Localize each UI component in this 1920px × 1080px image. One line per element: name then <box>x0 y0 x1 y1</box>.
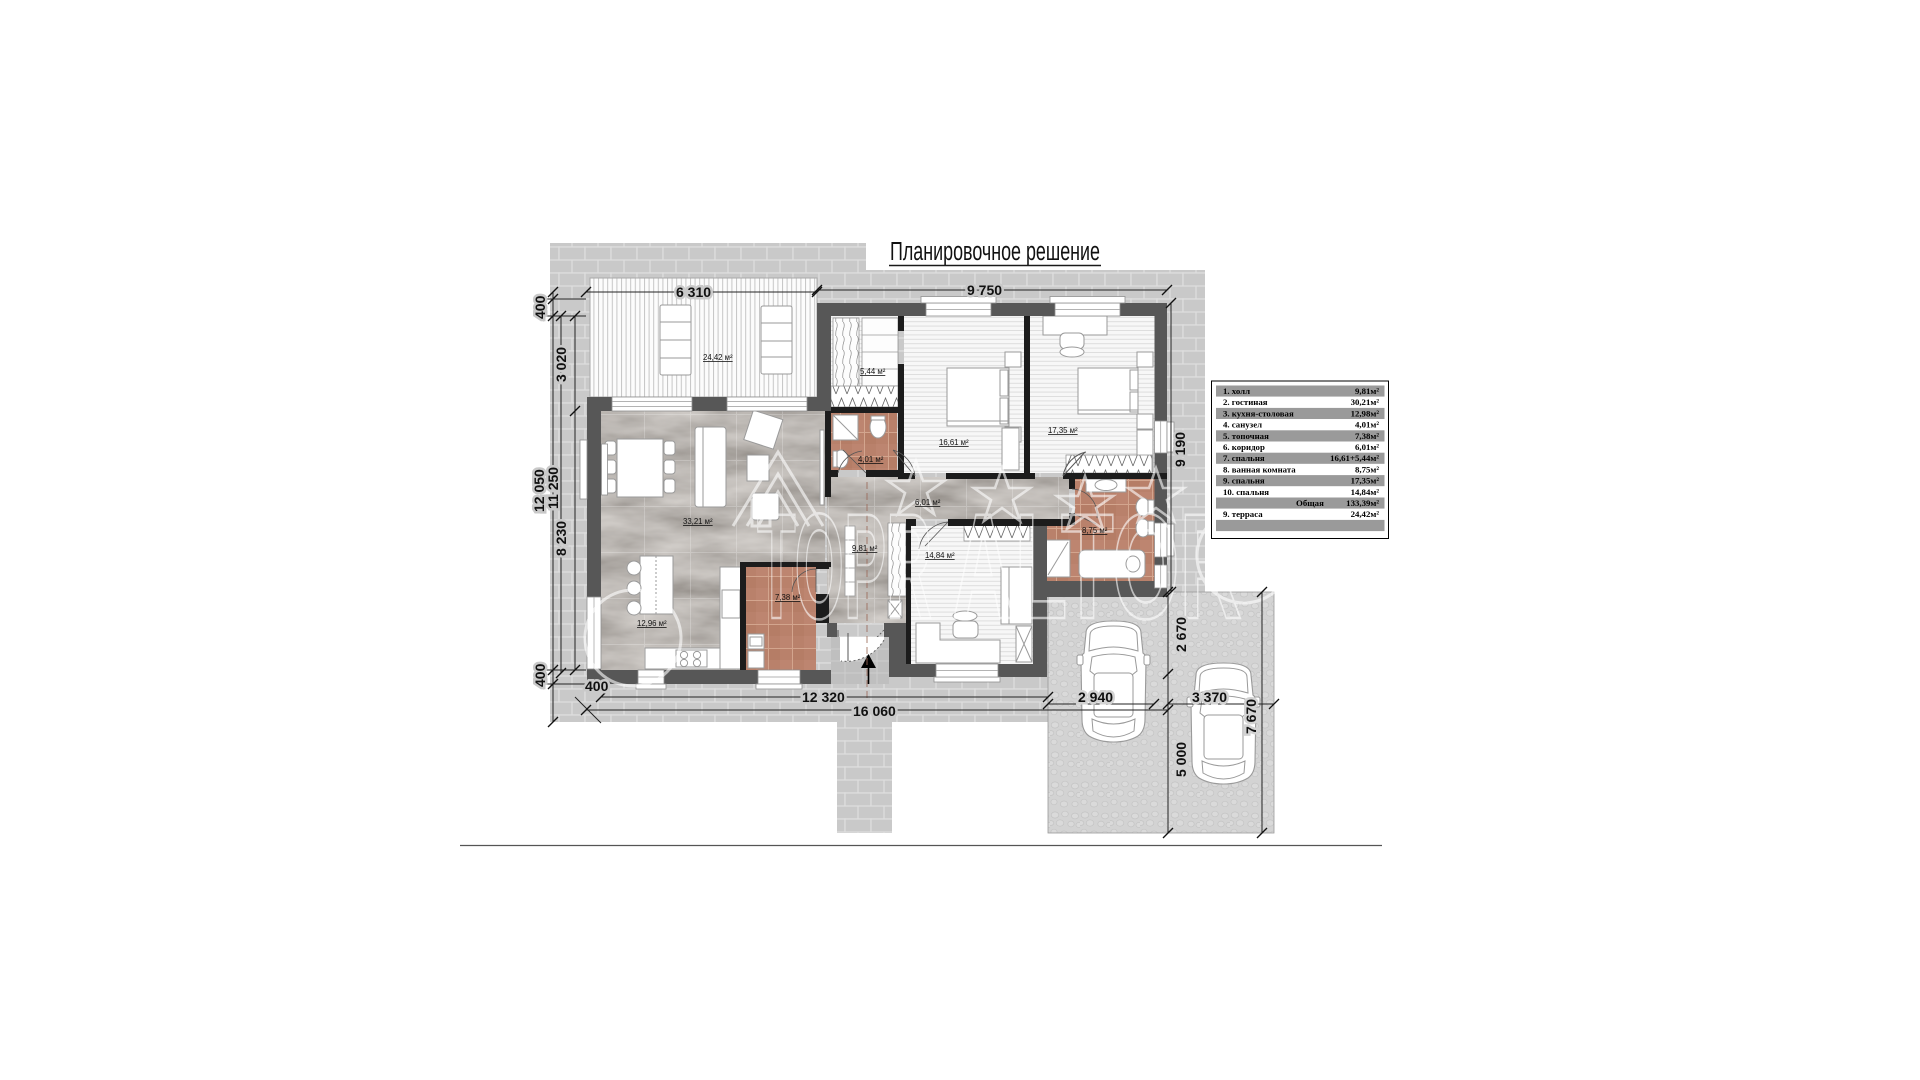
svg-text:Планировочное решение: Планировочное решение <box>890 238 1100 266</box>
svg-text:4,01 м²: 4,01 м² <box>858 455 884 464</box>
svg-text:6. коридор: 6. коридор <box>1223 442 1265 452</box>
svg-text:5 000: 5 000 <box>1173 742 1189 777</box>
svg-text:5,44 м²: 5,44 м² <box>860 367 886 376</box>
svg-text:8,75м²: 8,75м² <box>1355 464 1379 474</box>
svg-text:9,81 м²: 9,81 м² <box>852 544 878 553</box>
svg-text:16,61 м²: 16,61 м² <box>939 438 969 447</box>
svg-text:8,75 м²: 8,75 м² <box>1082 526 1108 535</box>
svg-text:24,42 м²: 24,42 м² <box>703 353 733 362</box>
svg-text:7 670: 7 670 <box>1243 699 1259 734</box>
svg-text:4. санузел: 4. санузел <box>1223 420 1262 430</box>
svg-text:400: 400 <box>532 663 548 687</box>
svg-text:4,01м²: 4,01м² <box>1355 420 1379 430</box>
svg-text:8 230: 8 230 <box>553 521 569 556</box>
svg-text:8. ванная комната: 8. ванная комната <box>1223 464 1296 474</box>
svg-text:3. кухня-столовая: 3. кухня-столовая <box>1223 408 1294 418</box>
svg-text:7. спальня: 7. спальня <box>1223 453 1265 463</box>
svg-text:3 020: 3 020 <box>553 347 569 382</box>
svg-text:7,38м²: 7,38м² <box>1355 431 1379 441</box>
svg-text:2 940: 2 940 <box>1078 689 1113 705</box>
svg-text:10. спальня: 10. спальня <box>1223 487 1269 497</box>
svg-text:11 250: 11 250 <box>545 467 561 509</box>
svg-text:30,21м²: 30,21м² <box>1351 397 1380 407</box>
svg-text:3 370: 3 370 <box>1192 689 1227 705</box>
svg-text:9 190: 9 190 <box>1172 432 1188 467</box>
svg-text:6,01 м²: 6,01 м² <box>915 498 941 507</box>
svg-text:16 060: 16 060 <box>853 703 896 719</box>
svg-text:14,84м²: 14,84м² <box>1351 487 1380 497</box>
svg-text:12,98м²: 12,98м² <box>1351 408 1380 418</box>
svg-text:400: 400 <box>585 678 609 694</box>
svg-text:12,96 м²: 12,96 м² <box>637 619 667 628</box>
svg-text:9 750: 9 750 <box>967 282 1002 298</box>
svg-text:16,61+5,44м²: 16,61+5,44м² <box>1330 453 1379 463</box>
svg-text:2 670: 2 670 <box>1173 617 1189 652</box>
svg-text:400: 400 <box>532 295 548 319</box>
svg-text:Общая: Общая <box>1296 498 1324 508</box>
svg-text:5. топочная: 5. топочная <box>1223 431 1269 441</box>
svg-text:33,21 м²: 33,21 м² <box>683 517 713 526</box>
svg-text:133,39м²: 133,39м² <box>1346 498 1379 508</box>
svg-text:7,38 м²: 7,38 м² <box>775 593 801 602</box>
svg-text:12 320: 12 320 <box>802 689 845 705</box>
svg-text:9. терраса: 9. терраса <box>1223 509 1263 519</box>
svg-text:24,42м²: 24,42м² <box>1351 509 1380 519</box>
svg-text:17,35 м²: 17,35 м² <box>1048 426 1078 435</box>
svg-text:6,01м²: 6,01м² <box>1355 442 1379 452</box>
svg-text:6 310: 6 310 <box>676 284 711 300</box>
svg-text:1. холл: 1. холл <box>1223 386 1250 396</box>
svg-text:9,81м²: 9,81м² <box>1355 386 1379 396</box>
svg-text:14,84 м²: 14,84 м² <box>925 551 955 560</box>
svg-text:17,35м²: 17,35м² <box>1351 476 1380 486</box>
svg-text:9. спальня: 9. спальня <box>1223 476 1265 486</box>
svg-text:2. гостиная: 2. гостиная <box>1223 397 1268 407</box>
